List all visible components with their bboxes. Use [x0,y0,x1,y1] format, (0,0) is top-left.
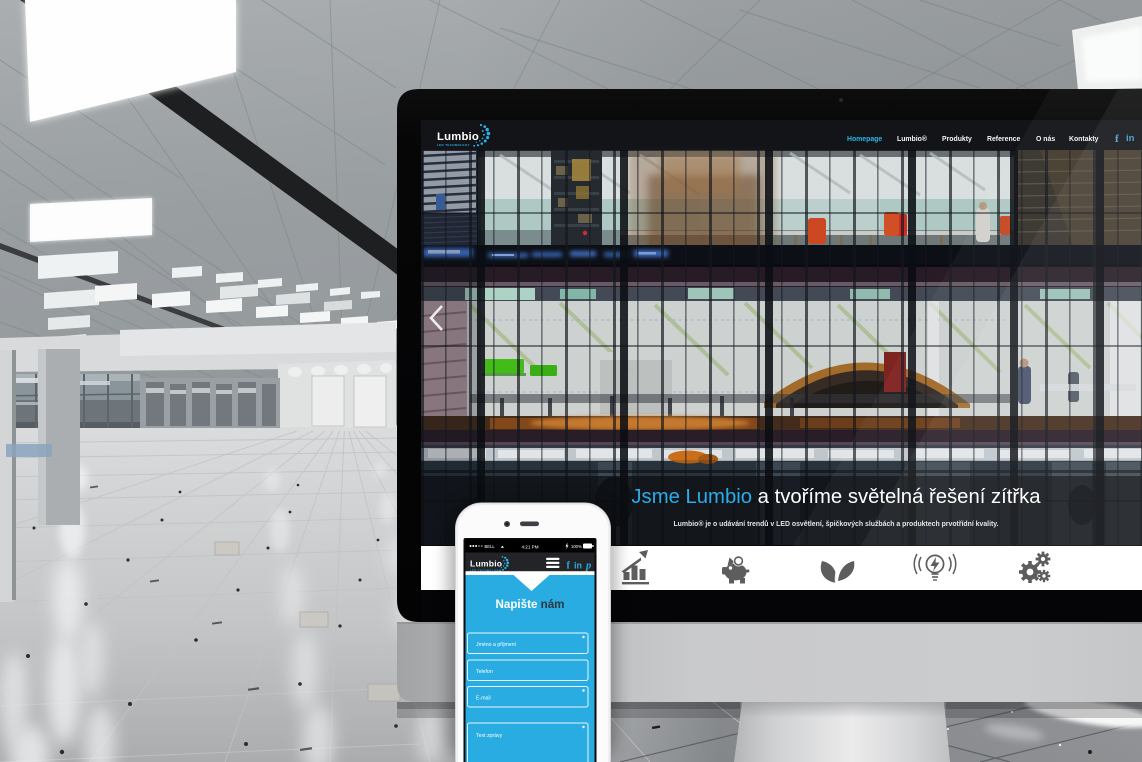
svg-text:Napište nám: Napište nám [496,598,565,611]
svg-text:Text zprávy: Text zprávy [476,733,503,739]
svg-text:Lumbio®: Lumbio® [897,135,927,143]
svg-text:E-mail: E-mail [476,696,491,702]
svg-text:100%: 100% [571,544,582,549]
svg-text:LED TECHNOLOGY: LED TECHNOLOGY [437,143,470,147]
svg-text:4:21 PM: 4:21 PM [521,544,538,549]
svg-text:Telefon: Telefon [476,669,493,675]
svg-text:Lumbio: Lumbio [437,131,479,143]
svg-text:Homepage: Homepage [847,136,882,143]
svg-text:Lumbio: Lumbio [470,559,502,569]
svg-text:Jméno a příjmení: Jméno a příjmení [476,642,517,648]
svg-text:Reference: Reference [987,136,1020,143]
svg-text:BELL: BELL [485,544,496,549]
svg-text:Produkty: Produkty [942,136,972,143]
svg-text:p: p [585,561,591,572]
svg-text:in: in [574,561,582,571]
